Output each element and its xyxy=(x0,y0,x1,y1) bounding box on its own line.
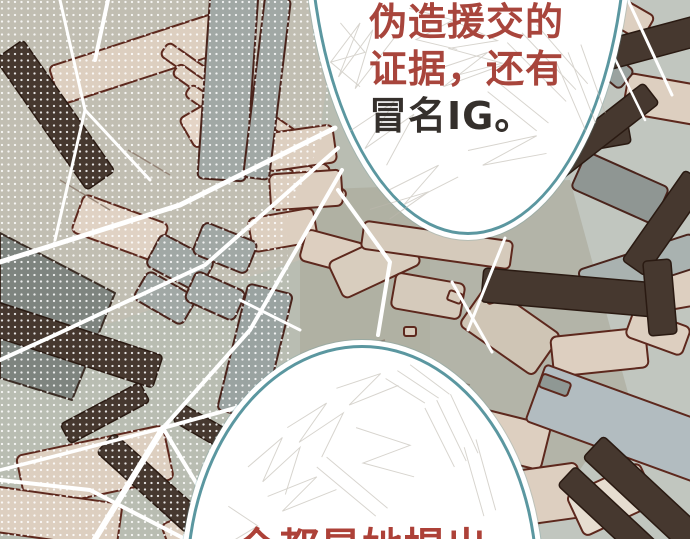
speech-text-line: 全都是她提出 xyxy=(189,524,535,539)
speech-bubble-bottom: 全都是她提出 xyxy=(186,345,538,539)
speech-text-line: 伪造援交的 xyxy=(369,0,564,46)
speech-bubble-top: 伪造援交的 证据，还有 冒名IG。 xyxy=(308,0,628,235)
speech-text-line: 证据，还有 xyxy=(369,46,564,93)
speech-text-line: 冒名IG。 xyxy=(369,93,564,140)
bubble-scribble-texture xyxy=(189,348,535,539)
comic-panel: 伪造援交的 证据，还有 冒名IG。 全都是她提出 xyxy=(0,0,690,539)
speech-text-bottom: 全都是她提出 xyxy=(189,524,535,539)
speech-text-top: 伪造援交的 证据，还有 冒名IG。 xyxy=(369,0,564,140)
